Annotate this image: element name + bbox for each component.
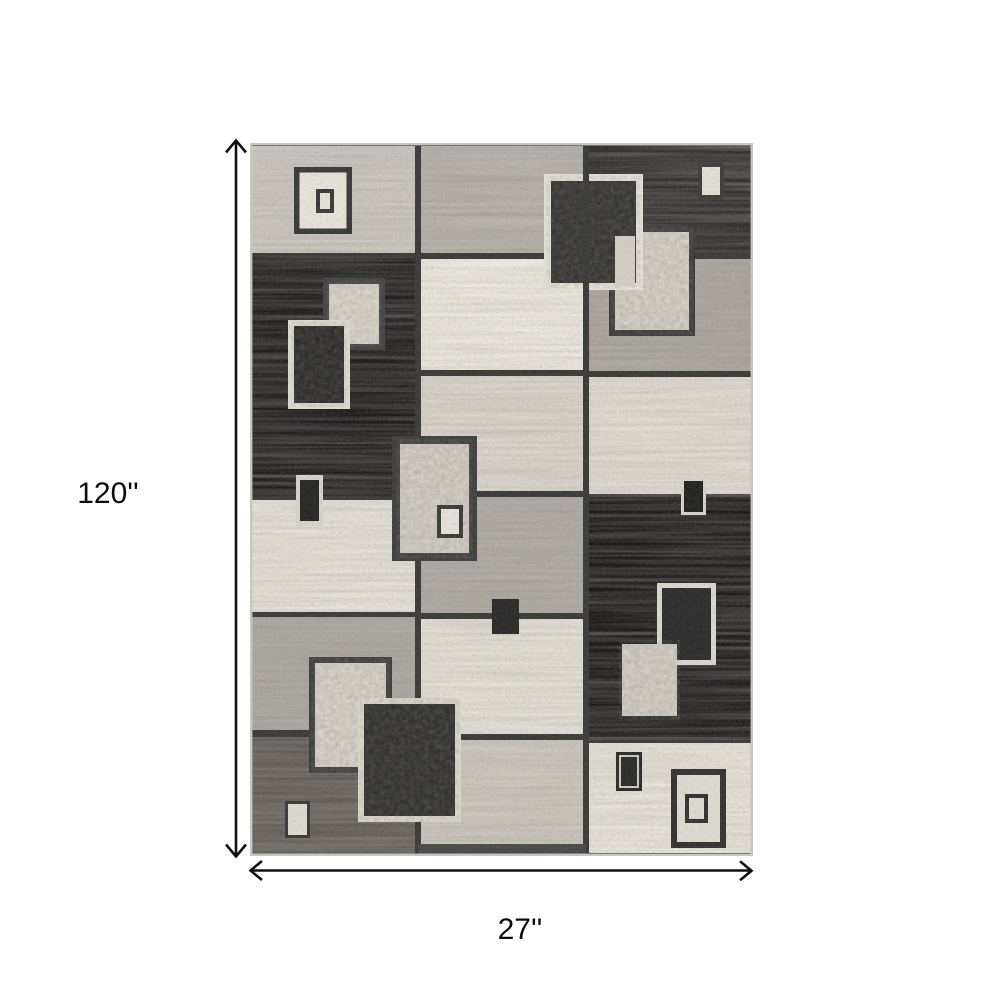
svg-text:120'': 120'' <box>77 477 139 510</box>
svg-text:27'': 27'' <box>498 913 543 946</box>
